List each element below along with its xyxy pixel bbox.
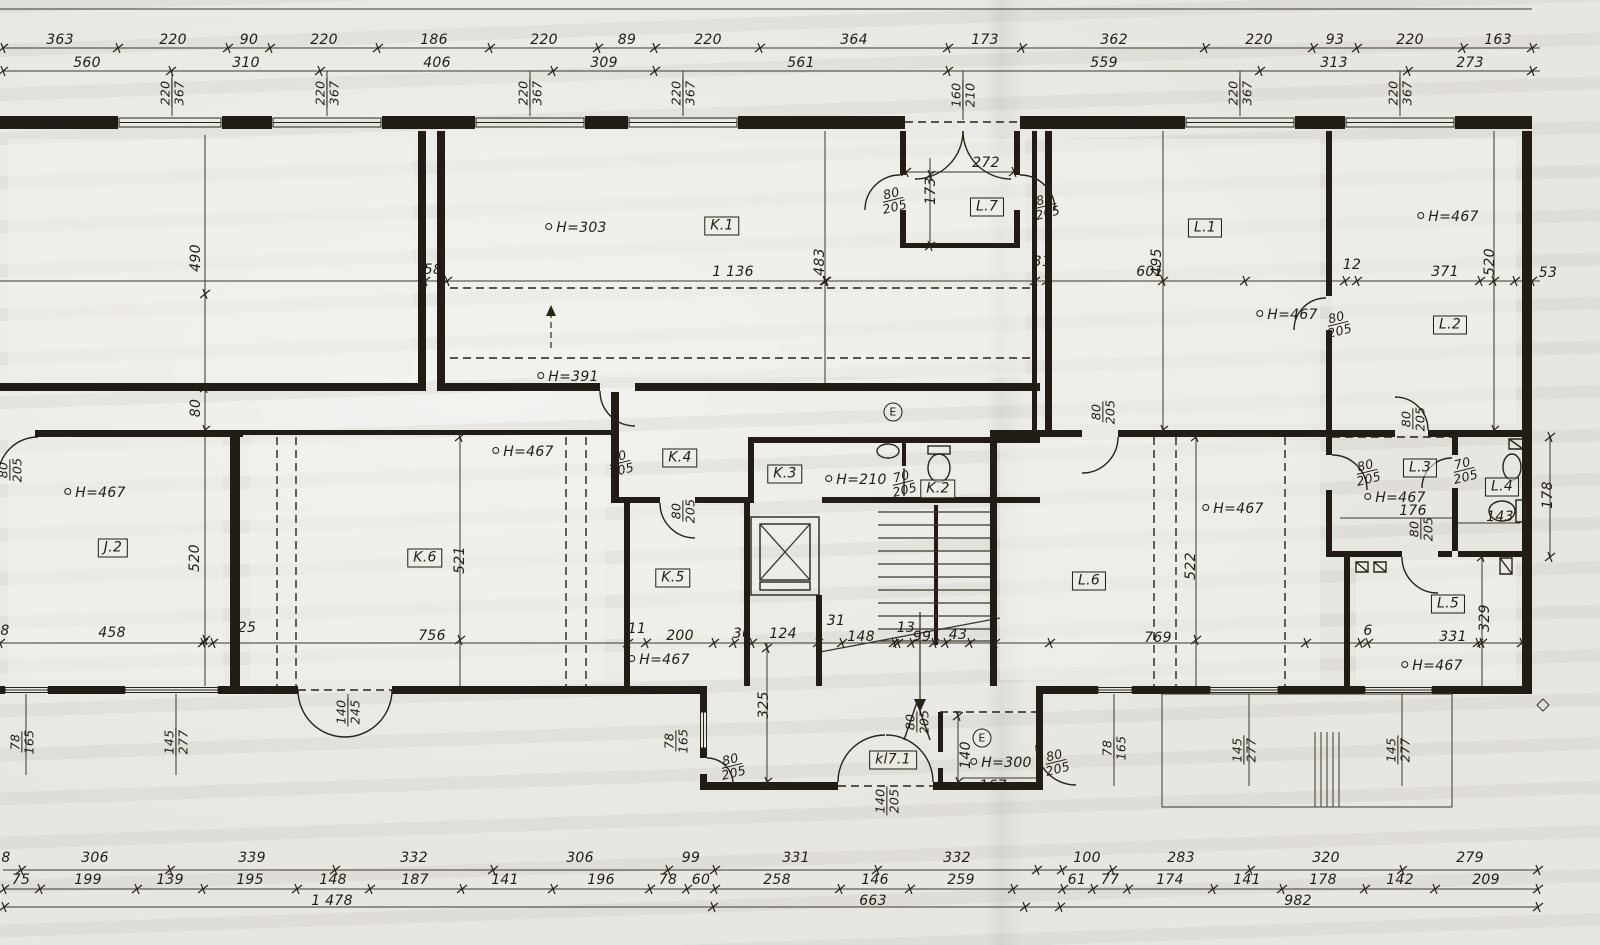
dimension-label-124: 124 [769, 626, 797, 642]
opening-size-label-80-205: 80205 [0, 458, 24, 483]
opening-width-value: 80 [1089, 402, 1103, 423]
dimension-label-362: 362 [1100, 32, 1128, 48]
annotation-layer: 3632209022018622089220364173362220932201… [0, 0, 1600, 945]
dimension-label-75: 75 [12, 872, 30, 888]
dimension-label-173: 173 [971, 32, 999, 48]
height-value: H=467 [503, 444, 553, 460]
dimension-label-6: 6 [1363, 623, 1372, 639]
opening-size-label-220-367: 220367 [669, 79, 696, 108]
opening-size-label-78-165: 78165 [662, 729, 689, 754]
opening-height-value: 165 [23, 730, 36, 755]
opening-size-label-220-367: 220367 [516, 79, 543, 108]
opening-size-label-160-210: 160210 [949, 81, 976, 110]
opening-size-label-80-205: 80205 [1323, 308, 1354, 340]
dimension-label-200: 200 [666, 628, 694, 644]
opening-size-label-70-205: 70205 [1449, 454, 1480, 486]
room-label-k-5: K.5 [655, 569, 690, 588]
room-label-l-5: L.5 [1431, 595, 1465, 614]
opening-size-label-80-205: 80205 [1352, 456, 1383, 488]
dimension-label-560: 560 [73, 55, 101, 71]
dimension-label-99: 99 [682, 850, 700, 866]
opening-width-value: 78 [662, 731, 676, 752]
room-label-j-2: J.2 [98, 539, 128, 558]
height-marker-dot-icon [1417, 212, 1424, 219]
dimension-label-306: 306 [81, 850, 109, 866]
room-label-k-2: K.2 [920, 480, 955, 499]
dimension-label-332: 332 [943, 850, 971, 866]
dimension-label-141: 141 [491, 872, 519, 888]
height-marker-dot-icon [628, 655, 635, 662]
height-marker-dot-icon [1401, 661, 1408, 668]
opening-size-label-80-205: 80205 [903, 710, 930, 735]
dimension-label-199: 199 [74, 872, 102, 888]
dimension-label-663: 663 [859, 893, 887, 909]
dimension-label-522: 522 [1183, 552, 1199, 580]
opening-height-value: 205 [608, 460, 635, 479]
dimension-label-163: 163 [1484, 32, 1512, 48]
opening-width-value: 220 [1226, 79, 1240, 108]
opening-height-value: 367 [531, 81, 544, 106]
opening-height-value: 205 [1044, 759, 1071, 778]
opening-size-label-78-165: 78165 [1100, 736, 1127, 761]
height-value: H=467 [1428, 209, 1478, 225]
room-label-l-1: L.1 [1188, 219, 1222, 238]
opening-width-value: 78 [8, 732, 22, 753]
opening-height-value: 165 [1115, 736, 1128, 761]
dimension-label-89: 89 [618, 32, 636, 48]
opening-size-label-80-205: 80205 [1399, 407, 1426, 432]
dimension-label-313: 313 [1320, 55, 1348, 71]
opening-size-label-140-205: 140205 [873, 787, 900, 816]
opening-width-value: 145 [162, 728, 176, 757]
opening-height-value: 277 [1245, 738, 1258, 763]
room-label-l-3: L.3 [1403, 459, 1437, 478]
dimension-label-43: 43 [949, 627, 967, 643]
opening-height-value: 205 [1422, 517, 1435, 542]
dimension-label-143: 143 [1486, 509, 1514, 525]
height-marker-dot-icon [64, 488, 71, 495]
room-label-l-7: L.7 [970, 198, 1004, 217]
room-label-l-4: L.4 [1485, 478, 1519, 497]
room-label-k-1: K.1 [704, 217, 739, 236]
opening-width-value: 220 [313, 79, 327, 108]
opening-width-value: 220 [1386, 79, 1400, 108]
room-label-k-6: K.6 [407, 549, 442, 568]
opening-height-value: 367 [1241, 81, 1254, 106]
opening-size-label-140-245: 140245 [334, 698, 361, 727]
height-value: H=303 [556, 220, 606, 236]
height-marker-dot-icon [1256, 310, 1263, 317]
dimension-label-521: 521 [452, 546, 468, 574]
opening-size-label-220-367: 220367 [1386, 79, 1413, 108]
dimension-label-178: 178 [1540, 481, 1556, 509]
room-label-l-6: L.6 [1072, 572, 1106, 591]
dimension-label-174: 174 [1156, 872, 1184, 888]
height-value: H=300 [981, 755, 1031, 771]
opening-height-value: 277 [1399, 738, 1412, 763]
dimension-label-559: 559 [1090, 55, 1118, 71]
opening-width-value: 80 [1407, 519, 1421, 540]
opening-size-label-80-205: 80205 [1041, 746, 1072, 778]
dimension-label-77: 77 [1101, 872, 1119, 888]
dimension-label-769: 769 [1144, 630, 1172, 646]
dimension-label-8: 8 [0, 623, 9, 639]
dimension-label-220: 220 [310, 32, 338, 48]
dimension-label-364: 364 [840, 32, 868, 48]
dimension-label-139: 139 [156, 872, 184, 888]
opening-height-value: 367 [1401, 81, 1414, 106]
axis-marker-e: E [973, 729, 992, 748]
opening-size-label-80-205: 80205 [717, 750, 748, 782]
ceiling-height-label-h-467: H=467 [1256, 307, 1317, 323]
dimension-label-90: 90 [240, 32, 258, 48]
opening-width-value: 80 [903, 712, 917, 733]
ceiling-height-label-h-467: H=467 [1401, 658, 1462, 674]
opening-height-value: 210 [964, 83, 977, 108]
opening-height-value: 205 [918, 710, 931, 735]
opening-height-value: 205 [720, 763, 747, 782]
dimension-label-31: 31 [827, 613, 845, 629]
dimension-label-331: 331 [1439, 629, 1467, 645]
dimension-label-220: 220 [1245, 32, 1273, 48]
dimension-label-80: 80 [188, 399, 204, 417]
dimension-label-141: 141 [1233, 872, 1261, 888]
dimension-label-53: 53 [1539, 265, 1557, 281]
dimension-label-329: 329 [1477, 604, 1493, 632]
ceiling-height-label-h-300: H=300 [970, 755, 1031, 771]
dimension-label-259: 259 [947, 872, 975, 888]
dimension-label-173: 173 [923, 177, 939, 205]
opening-width-value: 220 [669, 79, 683, 108]
height-marker-dot-icon [537, 372, 544, 379]
dimension-label-61: 61 [1068, 872, 1086, 888]
room-label-l-2: L.2 [1433, 316, 1467, 335]
opening-height-value: 205 [1355, 469, 1382, 488]
dimension-label-220: 220 [694, 32, 722, 48]
ceiling-height-label-h-467: H=467 [492, 444, 553, 460]
height-marker-dot-icon [970, 758, 977, 765]
dimension-label-11: 11 [628, 621, 646, 637]
dimension-label-272: 272 [972, 155, 1000, 171]
ceiling-height-label-h-467: H=467 [64, 485, 125, 501]
opening-width-value: 140 [873, 787, 887, 816]
opening-height-value: 205 [1326, 321, 1353, 340]
dimension-label-273: 273 [1456, 55, 1484, 71]
opening-width-value: 78 [1100, 738, 1114, 759]
opening-size-label-220-367: 220367 [158, 79, 185, 108]
opening-height-value: 205 [1414, 407, 1427, 432]
dimension-label-142: 142 [1386, 872, 1414, 888]
dimension-label-495: 495 [1149, 248, 1165, 276]
opening-size-label-80-205: 80205 [1031, 190, 1062, 222]
dimension-label-146: 146 [861, 872, 889, 888]
dimension-label-100: 100 [1073, 850, 1101, 866]
height-value: H=467 [75, 485, 125, 501]
dimension-label-371: 371 [1431, 264, 1459, 280]
height-marker-dot-icon [1202, 504, 1209, 511]
ceiling-height-label-h-303: H=303 [545, 220, 606, 236]
dimension-label-178: 178 [1309, 872, 1337, 888]
ceiling-height-label-h-467: H=467 [1202, 501, 1263, 517]
opening-height-value: 205 [11, 458, 24, 483]
opening-size-label-80-205: 80205 [1407, 517, 1434, 542]
dimension-label-12: 12 [1343, 257, 1361, 273]
height-value: H=467 [1267, 307, 1317, 323]
opening-width-value: 80 [1399, 409, 1413, 430]
dimension-label-756: 756 [418, 628, 446, 644]
opening-size-label-145-277: 145277 [1230, 736, 1257, 765]
opening-height-value: 277 [177, 730, 190, 755]
opening-width-value: 140 [334, 698, 348, 727]
opening-width-value: 220 [158, 79, 172, 108]
opening-width-value: 160 [949, 81, 963, 110]
dimension-label-93: 93 [1326, 32, 1344, 48]
dimension-label-310: 310 [232, 55, 260, 71]
opening-size-label-78-165: 78165 [8, 730, 35, 755]
ceiling-height-label-h-210: H=210 [825, 472, 886, 488]
dimension-label-99: 99 [913, 629, 931, 645]
dimension-label-561: 561 [787, 55, 815, 71]
dimension-label-186: 186 [420, 32, 448, 48]
opening-width-value: 145 [1230, 736, 1244, 765]
dimension-label-58: 58 [424, 262, 442, 278]
opening-size-label-220-367: 220367 [313, 79, 340, 108]
axis-marker-e: E [884, 403, 903, 422]
dimension-label-490: 490 [188, 244, 204, 272]
dimension-label-36: 36 [733, 626, 751, 642]
opening-height-value: 367 [684, 81, 697, 106]
opening-height-value: 205 [1034, 203, 1061, 222]
dimension-label-220: 220 [530, 32, 558, 48]
dimension-label-279: 279 [1456, 850, 1484, 866]
dimension-label-220: 220 [1396, 32, 1424, 48]
dimension-label-283: 283 [1167, 850, 1195, 866]
dimension-label-78: 78 [659, 872, 677, 888]
opening-height-value: 205 [1104, 400, 1117, 425]
height-value: H=467 [1213, 501, 1263, 517]
dimension-label-309: 309 [590, 55, 618, 71]
height-marker-dot-icon [825, 475, 832, 482]
floor-plan-page: 3632209022018622089220364173362220932201… [0, 0, 1600, 945]
dimension-label-406: 406 [423, 55, 451, 71]
opening-width-value: 220 [516, 79, 530, 108]
dimension-label-1-478: 1 478 [311, 893, 353, 909]
dimension-label-320: 320 [1312, 850, 1340, 866]
dimension-label-148: 148 [319, 872, 347, 888]
dimension-label-520: 520 [1482, 248, 1498, 276]
opening-size-label-145-277: 145277 [1384, 736, 1411, 765]
dimension-label-306: 306 [566, 850, 594, 866]
dimension-label-982: 982 [1284, 893, 1312, 909]
opening-width-value: 145 [1384, 736, 1398, 765]
dimension-label-458: 458 [98, 625, 126, 641]
dimension-label-331: 331 [782, 850, 810, 866]
dimension-label-325: 325 [756, 691, 772, 719]
height-marker-dot-icon [545, 223, 552, 230]
dimension-label-483: 483 [812, 248, 828, 276]
dimension-label-60: 60 [692, 872, 710, 888]
height-marker-dot-icon [1364, 493, 1371, 500]
opening-size-label-80-205: 80205 [1089, 400, 1116, 425]
height-marker-dot-icon [492, 447, 499, 454]
dimension-label-25: 25 [238, 620, 256, 636]
dimension-label-167: 167 [979, 778, 1007, 794]
height-value: H=391 [548, 369, 598, 385]
opening-size-label-80-205: 80205 [669, 499, 696, 524]
dimension-label-209: 209 [1472, 872, 1500, 888]
opening-height-value: 205 [891, 480, 918, 499]
height-value: H=467 [1412, 658, 1462, 674]
dimension-label-220: 220 [159, 32, 187, 48]
dimension-label-520: 520 [187, 544, 203, 572]
opening-width-value: 80 [669, 501, 683, 522]
opening-height-value: 367 [328, 81, 341, 106]
dimension-label-258: 258 [763, 872, 791, 888]
opening-height-value: 165 [677, 729, 690, 754]
dimension-label-332: 332 [400, 850, 428, 866]
dimension-label-148: 148 [847, 629, 875, 645]
opening-size-label-220-367: 220367 [1226, 79, 1253, 108]
dimension-label-187: 187 [401, 872, 429, 888]
room-label-kl7-1: kl7.1 [869, 751, 917, 770]
opening-height-value: 205 [684, 499, 697, 524]
opening-height-value: 205 [888, 789, 901, 814]
height-value: H=210 [836, 472, 886, 488]
dimension-label-8: 8 [1, 850, 10, 866]
dimension-label-195: 195 [236, 872, 264, 888]
ceiling-height-label-h-391: H=391 [537, 369, 598, 385]
opening-size-label-145-277: 145277 [162, 728, 189, 757]
opening-height-value: 367 [173, 81, 186, 106]
dimension-label-1-136: 1 136 [712, 264, 754, 280]
dimension-label-196: 196 [587, 872, 615, 888]
room-label-k-3: K.3 [767, 465, 802, 484]
ceiling-height-label-h-467: H=467 [1417, 209, 1478, 225]
dimension-label-363: 363 [46, 32, 74, 48]
dimension-label-339: 339 [238, 850, 266, 866]
height-value: H=467 [639, 652, 689, 668]
opening-height-value: 205 [1452, 467, 1479, 486]
opening-height-value: 205 [881, 197, 908, 216]
room-label-k-4: K.4 [662, 449, 697, 468]
opening-size-label-80-205: 80205 [878, 184, 909, 216]
dimension-label-31: 31 [1033, 254, 1051, 270]
ceiling-height-label-h-467: H=467 [628, 652, 689, 668]
opening-size-label-80-205: 80205 [605, 447, 636, 479]
opening-size-label-70-205: 70205 [888, 467, 919, 499]
opening-height-value: 245 [349, 700, 362, 725]
